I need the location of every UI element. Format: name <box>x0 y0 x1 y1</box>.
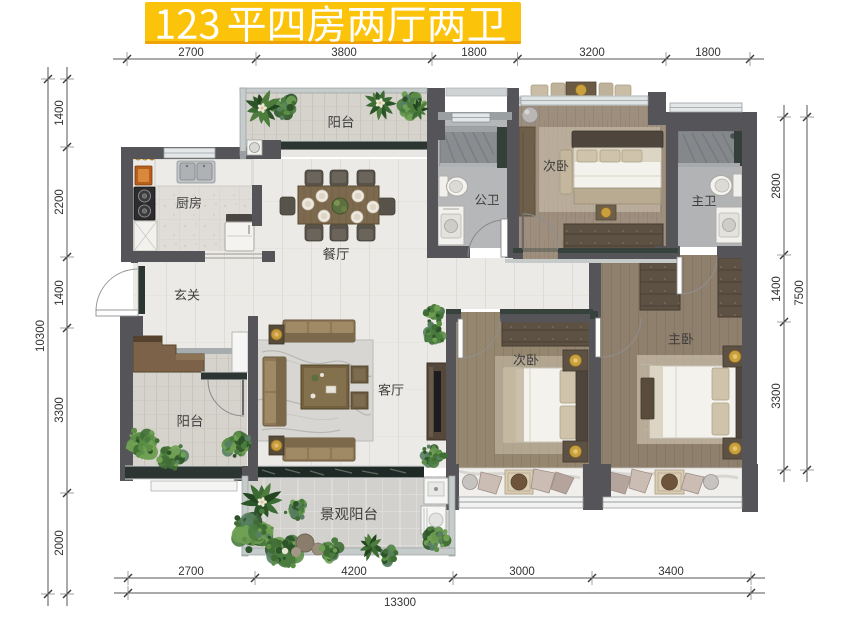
svg-text:13300: 13300 <box>384 597 416 609</box>
svg-text:2700: 2700 <box>178 47 204 59</box>
svg-text:3800: 3800 <box>331 47 357 59</box>
svg-text:3300: 3300 <box>54 397 66 423</box>
svg-text:7500: 7500 <box>794 280 806 306</box>
svg-text:3200: 3200 <box>579 47 605 59</box>
svg-text:3300: 3300 <box>771 383 783 409</box>
svg-text:3000: 3000 <box>509 566 535 578</box>
svg-text:2700: 2700 <box>178 566 204 578</box>
svg-text:4200: 4200 <box>341 566 367 578</box>
svg-text:3400: 3400 <box>658 566 684 578</box>
svg-text:1800: 1800 <box>461 47 487 59</box>
svg-text:2000: 2000 <box>54 530 66 556</box>
svg-text:2200: 2200 <box>54 189 66 215</box>
svg-text:10300: 10300 <box>35 320 47 352</box>
svg-text:1400: 1400 <box>54 280 66 306</box>
svg-text:1800: 1800 <box>695 47 721 59</box>
svg-text:2800: 2800 <box>771 173 783 199</box>
svg-text:1400: 1400 <box>771 276 783 302</box>
svg-text:1400: 1400 <box>54 100 66 126</box>
